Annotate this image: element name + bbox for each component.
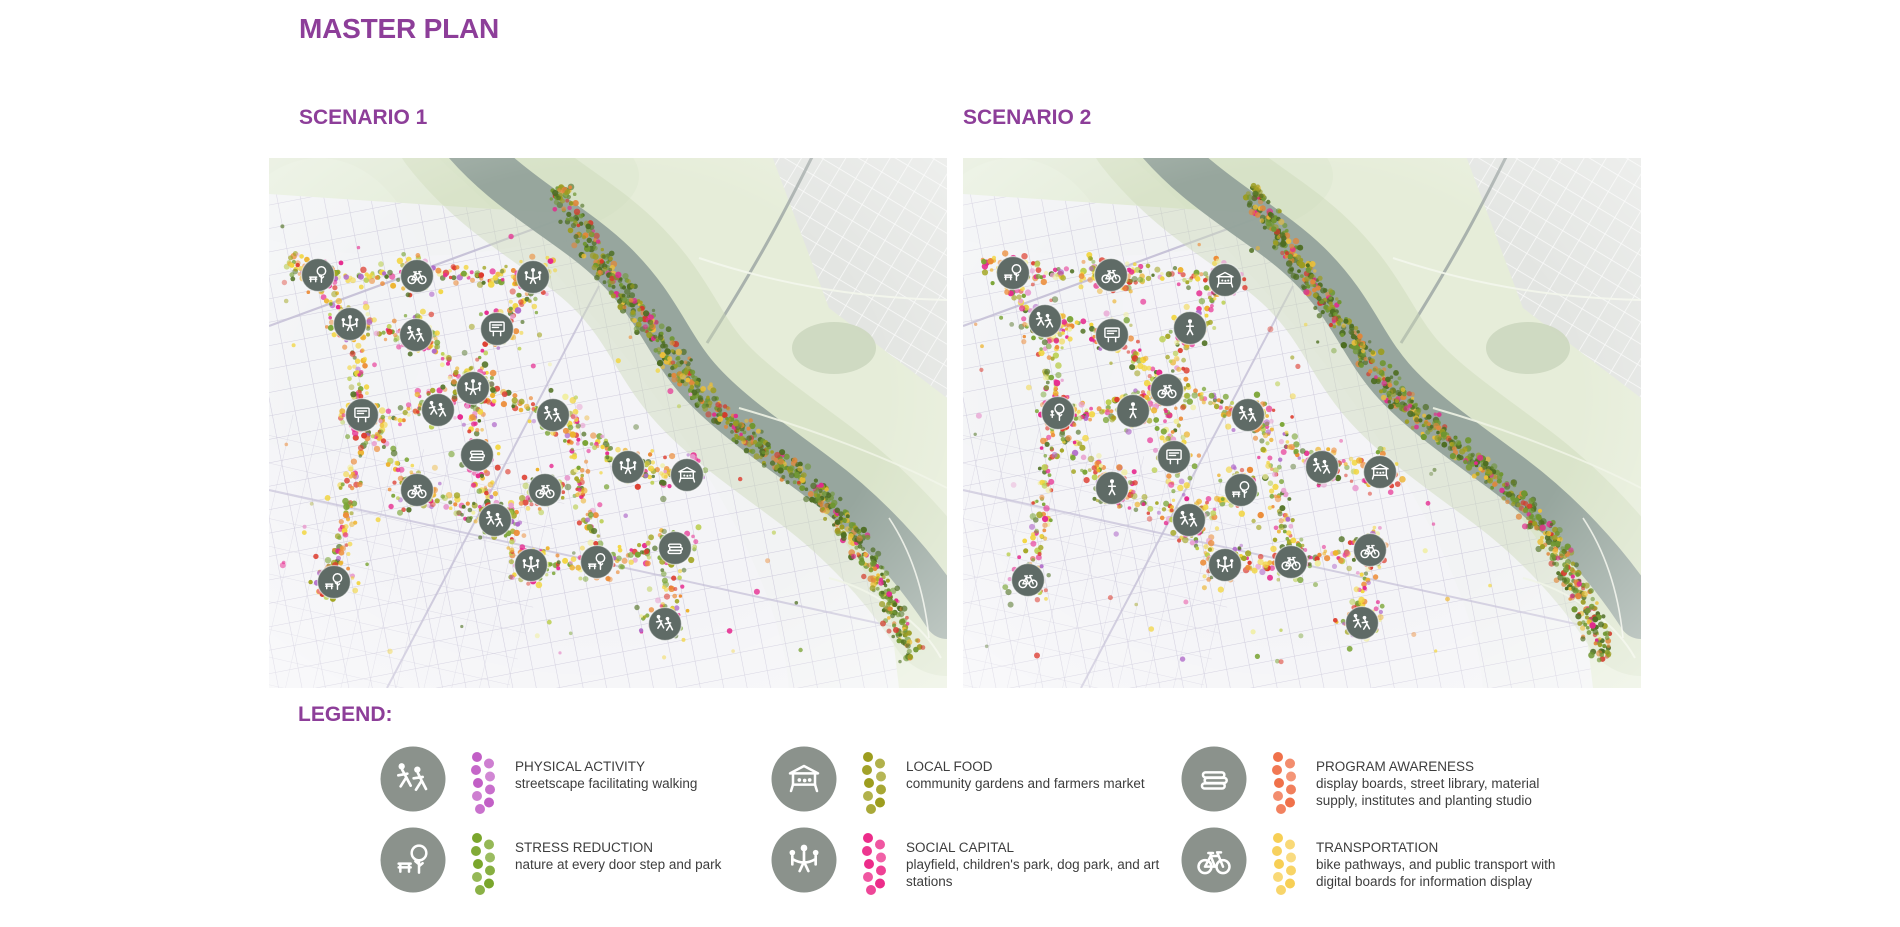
map-icon-runner [479,504,512,537]
legend-item-title: SOCIAL CAPITAL [906,839,1178,856]
map-icon-people [457,372,490,405]
map-icon-board [1096,319,1129,352]
map-icon-runner [537,399,570,432]
map-icon-person [1117,395,1150,428]
legend-item-program-awareness: PROGRAM AWARENESS display boards, street… [1181,746,1582,817]
stress-reduction-dot-cluster [468,830,498,898]
physical-activity-dot-cluster [468,749,498,817]
bike-icon [1181,827,1247,893]
legend-item-title: TRANSPORTATION [1316,839,1582,856]
legend-item-desc: streetscape facilitating walking [515,775,755,792]
scenario-1-heading: SCENARIO 1 [299,106,427,130]
map-icon-runner [422,394,455,427]
legend-heading: LEGEND: [298,703,393,727]
map-icon-books [659,532,692,565]
map-icon-tree-bench [318,566,351,599]
market-icon [771,746,837,812]
map-icon-market [1364,456,1397,489]
map-icon-bike [1354,534,1387,567]
local-food-dot-cluster [859,749,889,817]
legend-item-desc: playfield, children's park, dog park, an… [906,856,1178,890]
map-icon-people [612,451,645,484]
page-title: MASTER PLAN [299,13,499,45]
people-icon [771,827,837,893]
map-icon-runner [1306,451,1339,484]
map-icon-runner [1232,399,1265,432]
legend-item-desc: nature at every door step and park [515,856,755,873]
scenario-1-map [269,158,947,688]
social-capital-dot-cluster [859,830,889,898]
map-icon-board [481,313,514,346]
map-icon-tree-bench [1225,474,1258,507]
map-icon-books [461,439,494,472]
map-icon-people [334,308,367,341]
map-icon-tree-bench [581,546,614,579]
runner-icon [380,746,446,812]
map-icon-tree [1042,397,1075,430]
map-icon-bike [1151,374,1184,407]
scenario-1-map-svg [269,158,947,688]
legend-item-stress-reduction: STRESS REDUCTION nature at every door st… [380,827,755,898]
books-icon [1181,746,1247,812]
program-awareness-dot-cluster [1269,749,1299,817]
map-icon-runner [649,608,682,641]
map-icon-person [1096,472,1129,505]
scenario-2-map [963,158,1641,688]
legend-item-desc: community gardens and farmers market [906,775,1178,792]
legend-item-transportation: TRANSPORTATION bike pathways, and public… [1181,827,1582,898]
map-icon-runner [400,319,433,352]
map-icon-tree-bench [997,257,1030,290]
legend-item-title: LOCAL FOOD [906,758,1178,775]
map-icon-runner [1173,504,1206,537]
map-icon-bike [1275,546,1308,579]
map-icon-market [671,459,704,492]
legend-item-local-food: LOCAL FOOD community gardens and farmers… [771,746,1178,817]
map-icon-board [1158,441,1191,474]
scenario-2-map-svg [963,158,1641,688]
map-icon-bike [401,474,434,507]
legend-item-title: PHYSICAL ACTIVITY [515,758,755,775]
map-icon-people [517,261,550,294]
legend-item-title: PROGRAM AWARENESS [1316,758,1582,775]
map-icon-person [1174,312,1207,345]
map-icon-runner [1346,607,1379,640]
legend-item-desc: display boards, street library, material… [1316,775,1582,809]
map-icon-bike [401,260,434,293]
map-icon-bike [1095,259,1128,292]
transportation-dot-cluster [1269,830,1299,898]
map-icon-bike [1012,564,1045,597]
map-icon-market [1209,264,1242,297]
map-icon-people [1209,549,1242,582]
map-icon-tree-bench [302,259,335,292]
tree-bench-icon [380,827,446,893]
map-icon-people [515,549,548,582]
map-icon-runner [1029,305,1062,338]
legend-item-desc: bike pathways, and public transport with… [1316,856,1582,890]
legend-item-social-capital: SOCIAL CAPITAL playfield, children's par… [771,827,1178,898]
legend-item-title: STRESS REDUCTION [515,839,755,856]
scenario-2-heading: SCENARIO 2 [963,106,1091,130]
map-icon-bike [529,474,562,507]
legend-item-physical-activity: PHYSICAL ACTIVITY streetscape facilitati… [380,746,755,817]
map-icon-board [346,399,379,432]
